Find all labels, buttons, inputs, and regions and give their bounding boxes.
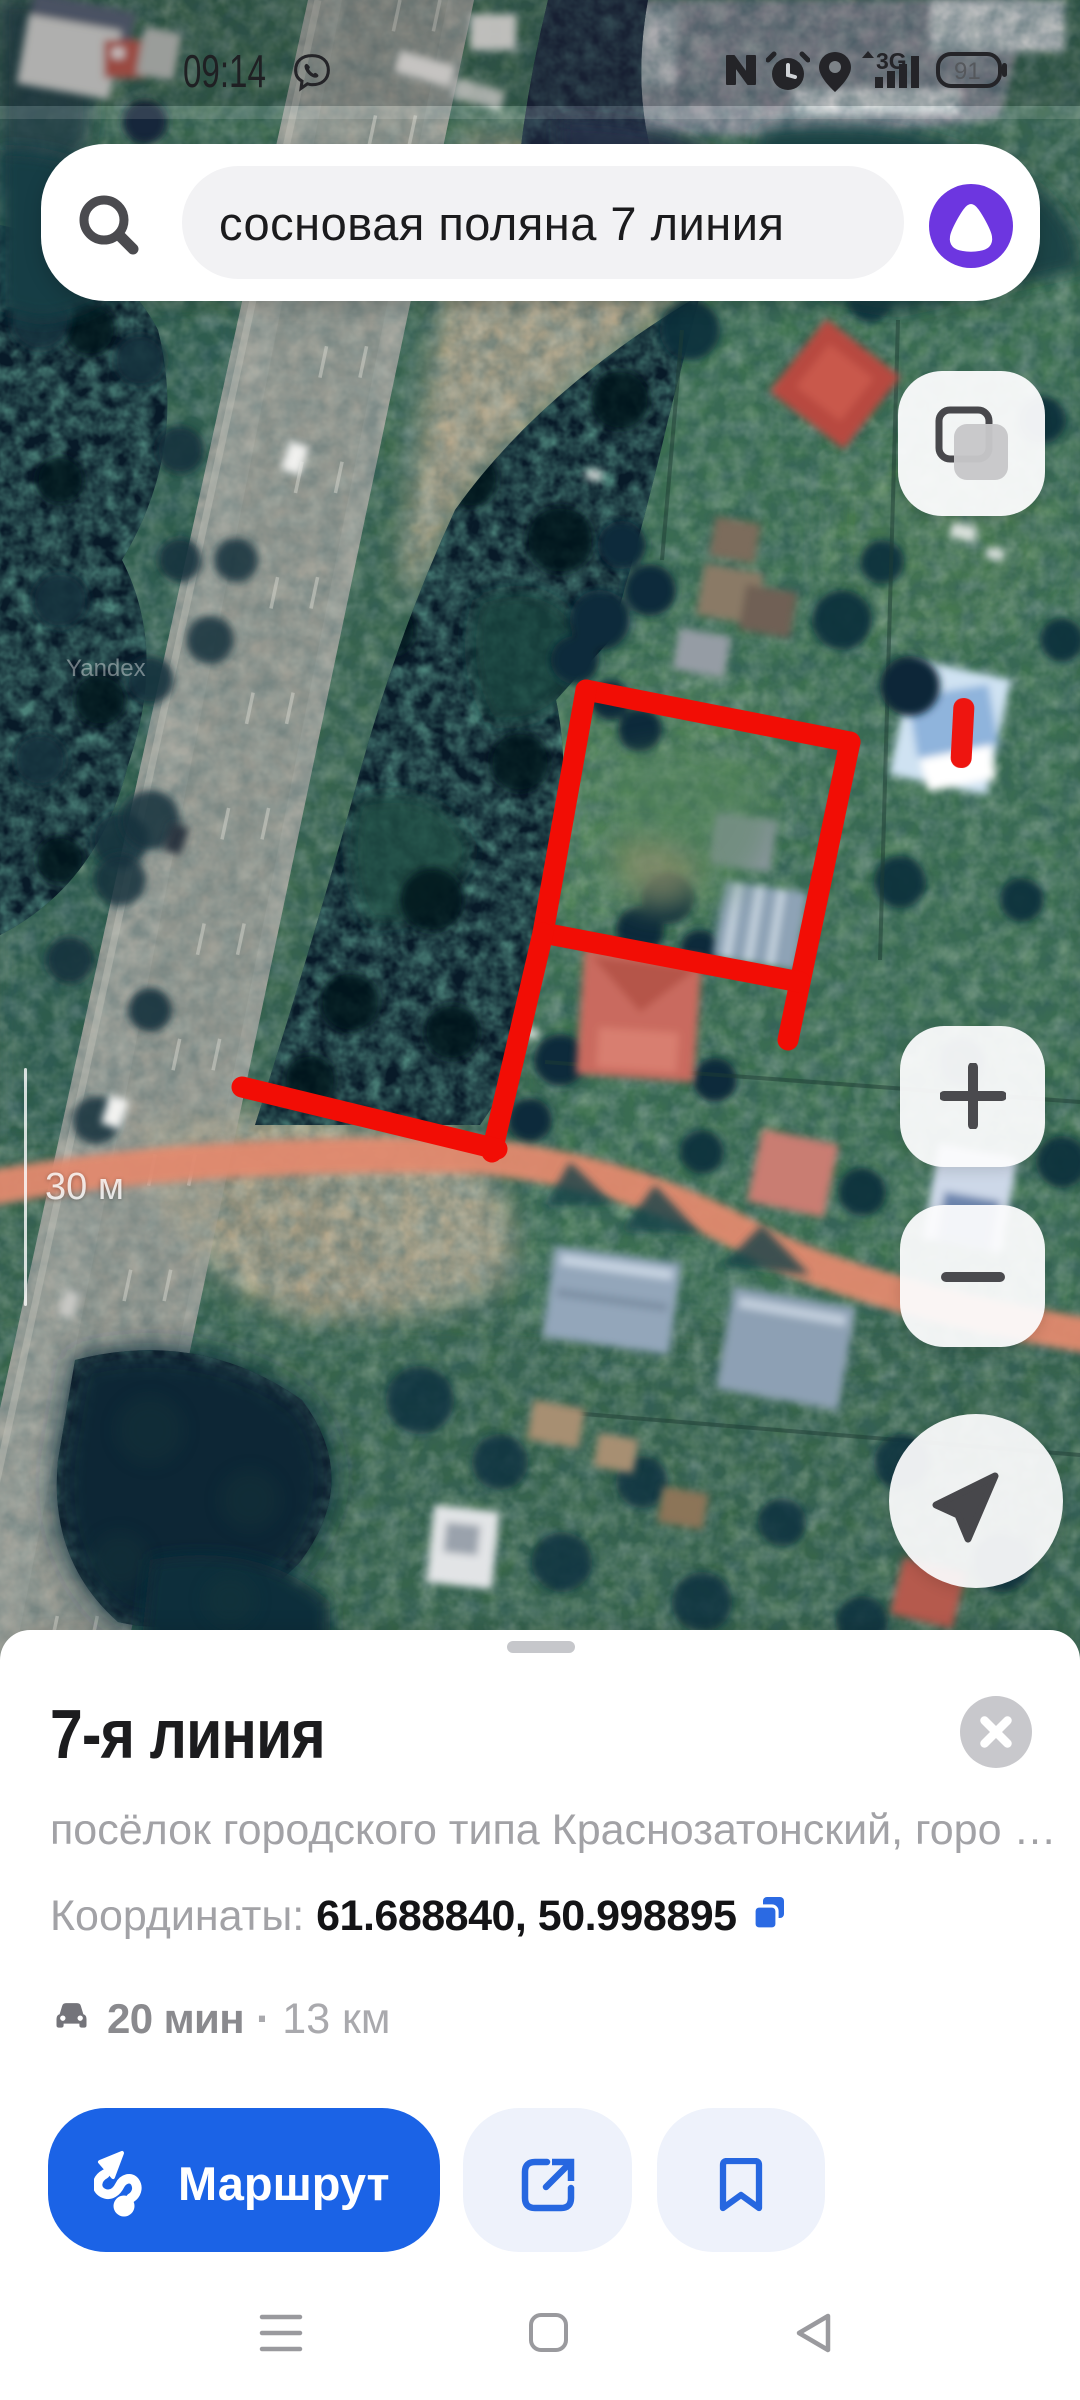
svg-text:91: 91 bbox=[954, 58, 981, 85]
svg-text:Yandex: Yandex bbox=[66, 655, 146, 682]
